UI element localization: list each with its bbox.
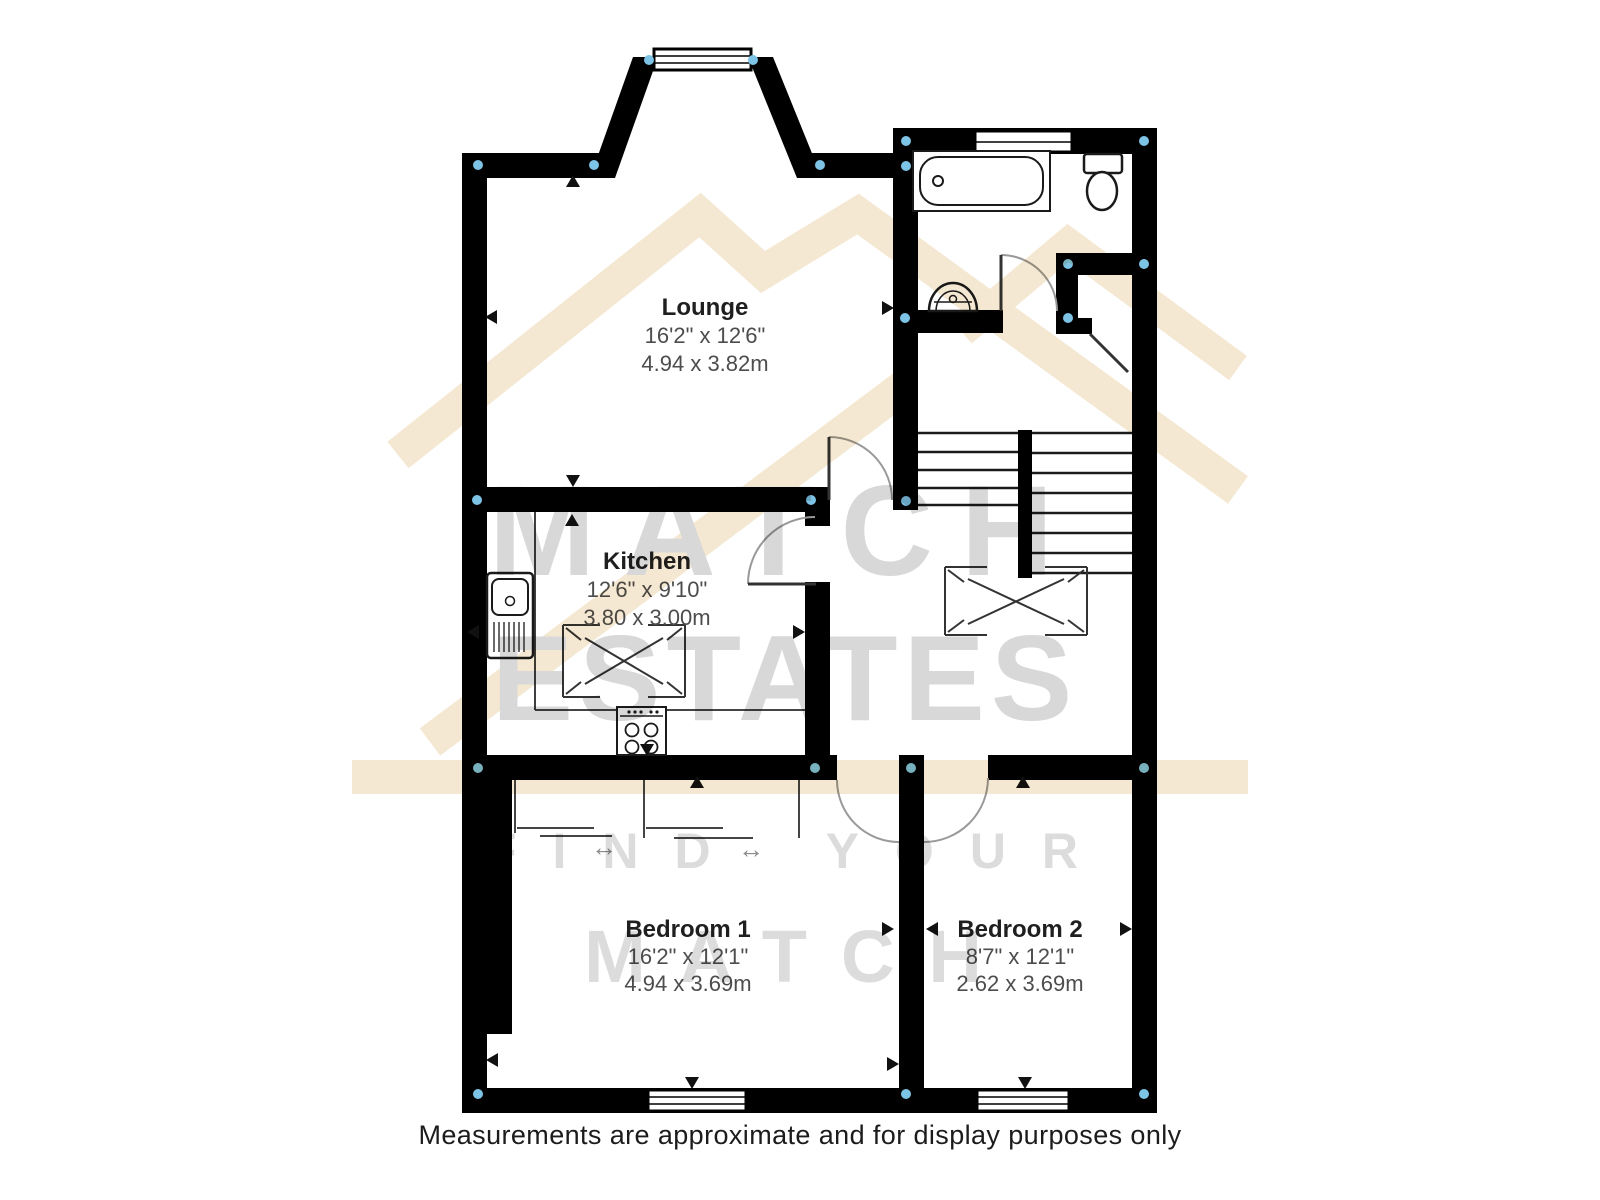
bedroom2-door-icon [924, 778, 988, 842]
wall-bay-right [748, 57, 822, 178]
bedroom1-window-icon [648, 1090, 746, 1111]
slide-arrow-icon: ↔ [738, 834, 764, 864]
disclaimer-caption: Measurements are approximate and for dis… [0, 1120, 1600, 1151]
wall-right [1132, 128, 1157, 1113]
bathroom-door-icon [1001, 255, 1057, 311]
wall-bay-left [590, 57, 658, 178]
room-metric: 3.80 x 3.00m [583, 605, 710, 630]
cooker-icon [617, 707, 666, 755]
room-metric: 2.62 x 3.69m [956, 971, 1083, 996]
wall-bedroom-divider [899, 755, 924, 1088]
room-metric: 4.94 x 3.69m [624, 971, 751, 996]
basin-icon [929, 283, 977, 311]
room-imperial: 12'6" x 9'10" [587, 577, 708, 602]
understairs-storage-icon [945, 567, 1087, 635]
bedroom1-door-icon [837, 780, 899, 842]
wall-kitchen-right [805, 582, 830, 758]
bedroom2-window-icon [977, 1090, 1069, 1111]
bedroom1-label: Bedroom 1 16'2" x 12'1" 4.94 x 3.69m [624, 916, 751, 996]
wall-kitchen-bottom [462, 755, 837, 780]
room-name: Bedroom 1 [625, 916, 750, 943]
kitchen-island-icon [563, 625, 685, 697]
bedroom2-label: Bedroom 2 8'7" x 12'1" 2.62 x 3.69m [956, 916, 1083, 996]
wardrobes [515, 780, 799, 838]
room-name: Kitchen [603, 548, 691, 575]
wall-bedroom2-top [988, 755, 1134, 780]
wall-cupboard-stub [1056, 318, 1092, 334]
chimney-breast [484, 756, 512, 1034]
bathtub-icon [913, 151, 1050, 211]
stairs-icon [918, 430, 1132, 578]
room-name: Lounge [662, 294, 749, 321]
room-imperial: 16'2" x 12'1" [628, 944, 749, 969]
room-imperial: 8'7" x 12'1" [966, 944, 1074, 969]
lounge-label: Lounge 16'2" x 12'6" 4.94 x 3.82m [641, 294, 768, 376]
floorplan-page: ↔ ↔ Lounge 16'2" x 12'6 [0, 0, 1600, 1200]
kitchen-sink-icon [487, 573, 533, 658]
kitchen-door-icon [748, 517, 816, 584]
room-metric: 4.94 x 3.82m [641, 351, 768, 376]
wall-top-left [462, 153, 602, 178]
floorplan-diagram: ↔ ↔ Lounge 16'2" x 12'6 [0, 0, 1600, 1200]
room-name: Bedroom 2 [957, 916, 1082, 943]
bay-window-icon [654, 49, 751, 70]
lounge-door-icon [829, 437, 892, 500]
toilet-icon [1084, 154, 1122, 210]
bathroom-window-icon [975, 131, 1072, 152]
wall-lounge-kitchen [462, 487, 830, 512]
cupboard-door-icon [1090, 334, 1128, 372]
slide-arrow-icon: ↔ [591, 832, 617, 862]
room-imperial: 16'2" x 12'6" [645, 323, 766, 348]
kitchen-label: Kitchen 12'6" x 9'10" 3.80 x 3.00m [583, 548, 710, 630]
wall-bathroom-bottom [893, 310, 1003, 333]
